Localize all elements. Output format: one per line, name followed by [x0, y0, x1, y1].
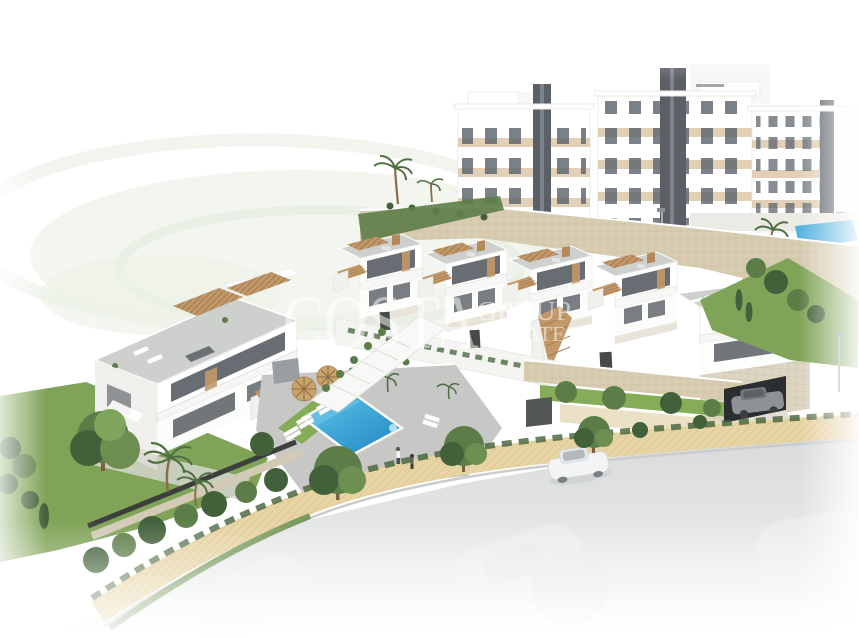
aerial-render: COSTA GROUP ESTATES — [0, 0, 859, 638]
pool-steps — [389, 424, 397, 432]
watermark-estates: ESTATES — [487, 322, 578, 346]
cypress — [746, 302, 753, 322]
bottom-fade — [0, 520, 859, 638]
tree — [660, 392, 682, 414]
shrub — [322, 384, 330, 392]
utility-box — [526, 397, 552, 427]
cypress — [736, 289, 743, 311]
tree — [764, 270, 788, 294]
shrub — [387, 203, 394, 210]
palm-tree — [431, 184, 432, 202]
roof-railing — [696, 84, 724, 87]
pedestrian — [410, 454, 414, 469]
tree — [703, 399, 721, 417]
left-fade — [0, 0, 46, 638]
watermark-brand: COSTA — [283, 281, 479, 365]
top-fade — [0, 0, 859, 80]
tree — [555, 381, 577, 403]
roof-plant — [222, 317, 228, 323]
straw-umbrella — [292, 377, 316, 401]
tree — [602, 386, 626, 410]
tree — [746, 258, 766, 278]
render-canvas: COSTA GROUP ESTATES — [0, 0, 859, 638]
